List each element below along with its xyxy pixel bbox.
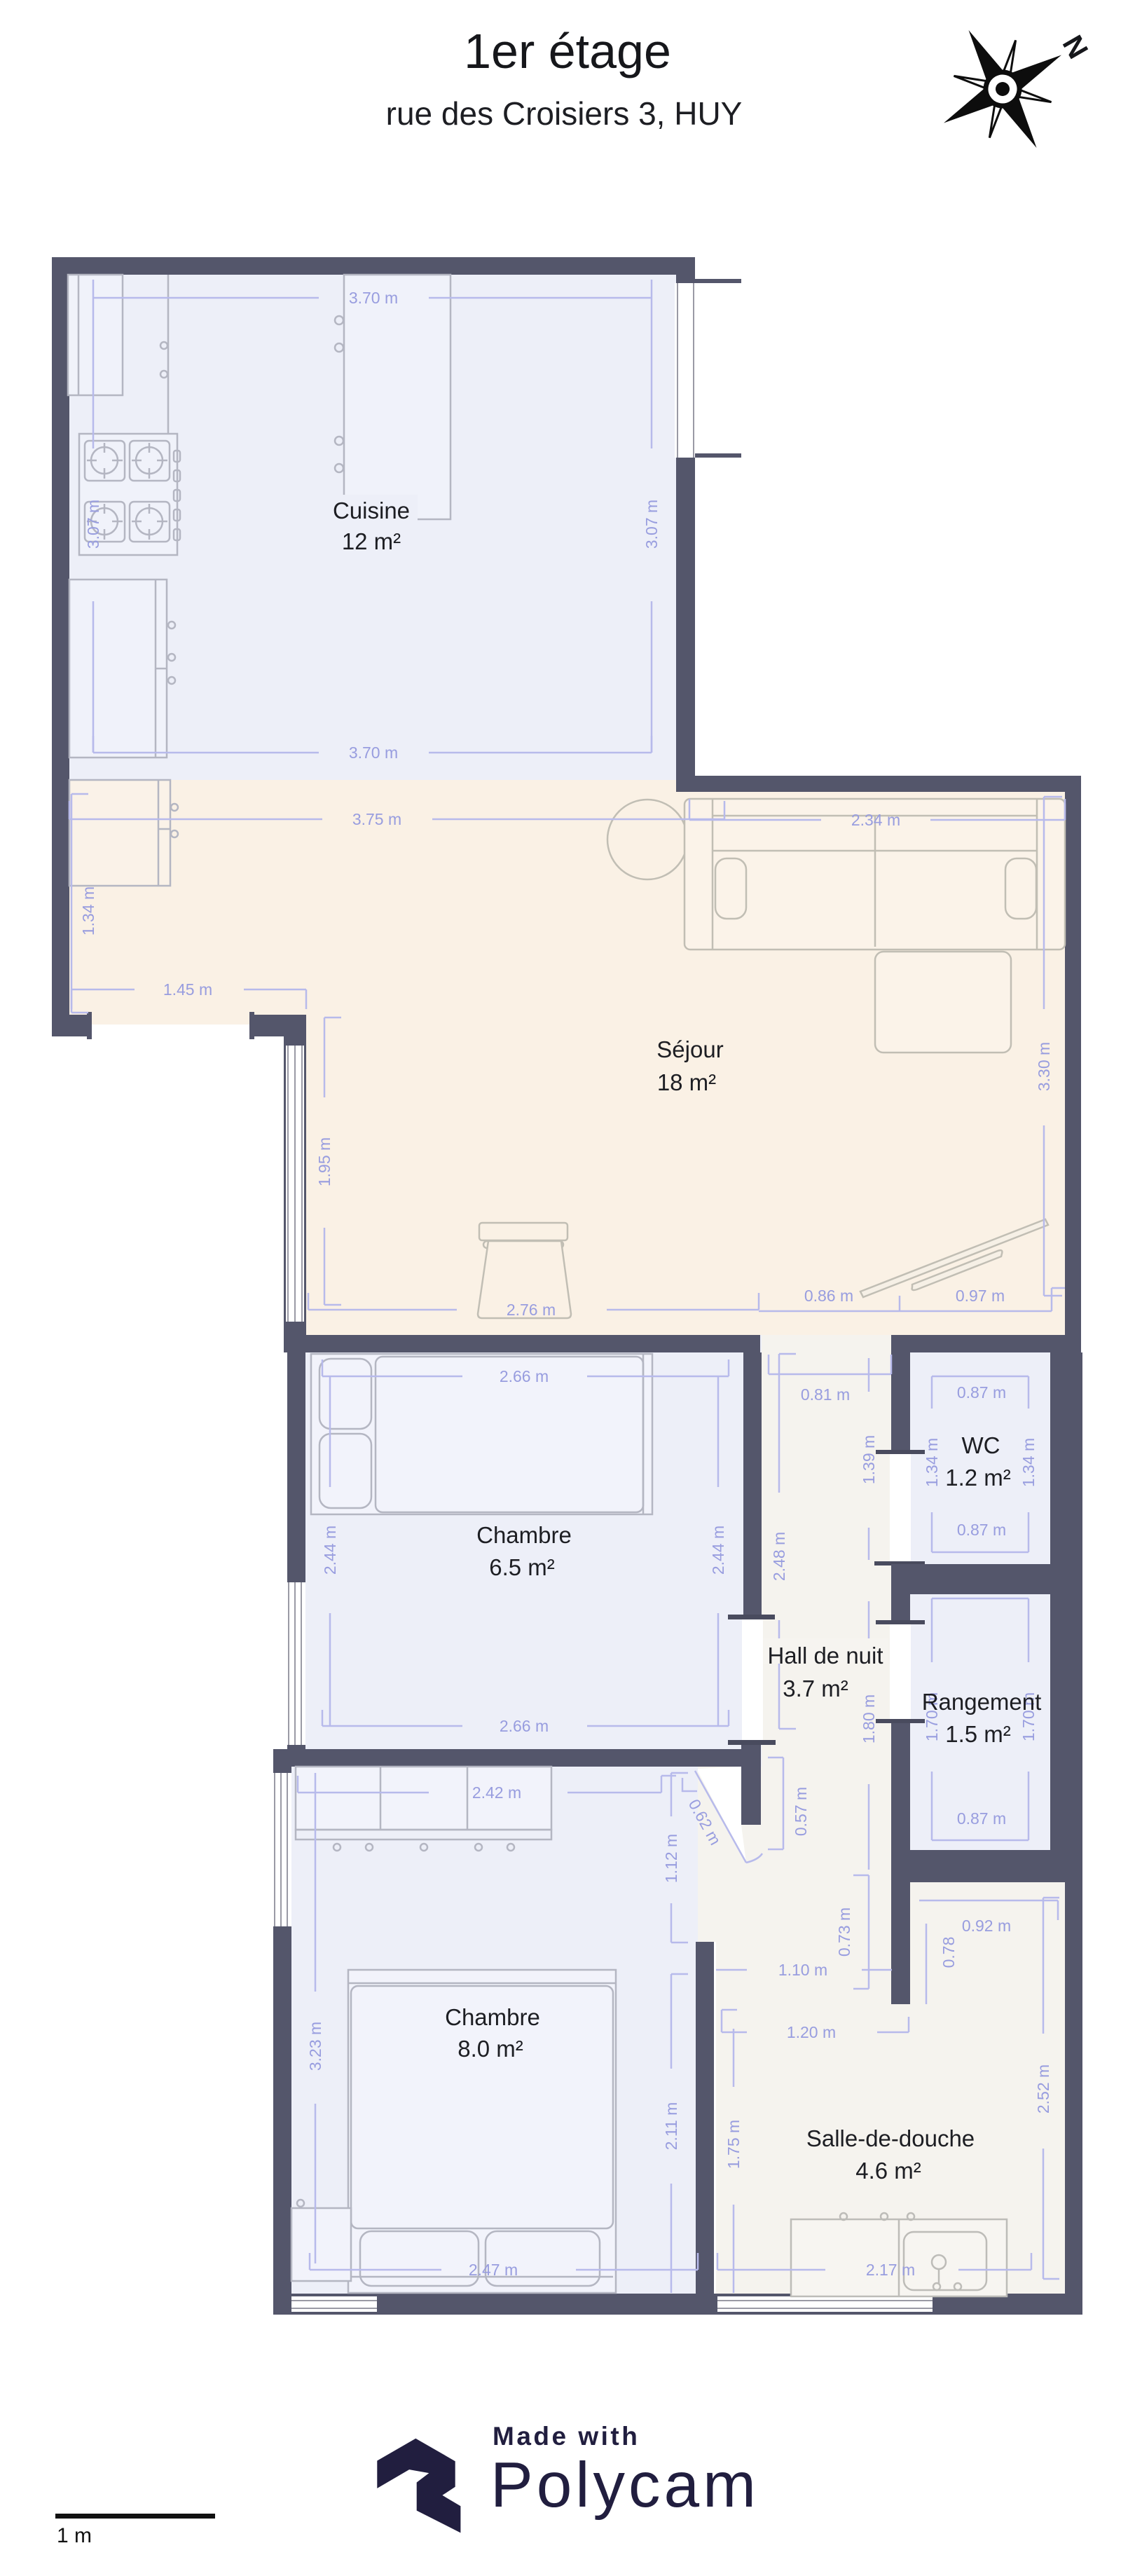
svg-text:1.80 m: 1.80 m (860, 1694, 878, 1743)
svg-text:2.17 m: 2.17 m (866, 2261, 915, 2279)
svg-text:4.6 m²: 4.6 m² (855, 2158, 921, 2184)
svg-text:2.66 m: 2.66 m (500, 1717, 549, 1735)
svg-text:Rangement: Rangement (922, 1689, 1042, 1715)
svg-text:0.86 m: 0.86 m (804, 1287, 853, 1305)
svg-text:1.34 m: 1.34 m (1019, 1438, 1038, 1487)
svg-text:1.12 m: 1.12 m (662, 1834, 680, 1883)
svg-text:2.44 m: 2.44 m (321, 1526, 339, 1575)
svg-text:2.66 m: 2.66 m (500, 1367, 549, 1385)
svg-text:rue des Croisiers 3, HUY: rue des Croisiers 3, HUY (386, 95, 743, 132)
svg-text:1.2 m²: 1.2 m² (945, 1465, 1011, 1491)
svg-text:12 m²: 12 m² (342, 528, 401, 554)
svg-text:1.39 m: 1.39 m (860, 1435, 878, 1484)
svg-text:Chambre: Chambre (445, 2004, 540, 2030)
svg-text:0.97 m: 0.97 m (956, 1287, 1005, 1305)
svg-text:1.95 m: 1.95 m (315, 1137, 333, 1186)
svg-text:Hall de nuit: Hall de nuit (767, 1643, 883, 1669)
svg-text:2.47 m: 2.47 m (469, 2261, 518, 2279)
svg-text:3.30 m: 3.30 m (1035, 1042, 1053, 1091)
svg-text:8.0 m²: 8.0 m² (458, 2036, 523, 2062)
svg-text:3.70 m: 3.70 m (349, 289, 398, 307)
svg-text:1.34 m: 1.34 m (79, 886, 97, 936)
svg-text:2.34 m: 2.34 m (851, 811, 900, 829)
svg-text:1.20 m: 1.20 m (787, 2023, 836, 2041)
svg-text:2.42 m: 2.42 m (472, 1783, 521, 1802)
svg-text:3.70 m: 3.70 m (349, 744, 398, 762)
svg-text:1.5 m²: 1.5 m² (945, 1721, 1011, 1747)
svg-text:0.81 m: 0.81 m (801, 1385, 850, 1404)
svg-text:2.48 m: 2.48 m (770, 1532, 788, 1581)
svg-text:2.76 m: 2.76 m (507, 1301, 556, 1319)
svg-text:18 m²: 18 m² (657, 1069, 716, 1095)
svg-text:Chambre: Chambre (476, 1522, 572, 1548)
svg-text:3.07 m: 3.07 m (84, 500, 102, 549)
svg-text:1.45 m: 1.45 m (163, 980, 212, 999)
svg-text:0.87 m: 0.87 m (957, 1521, 1006, 1539)
svg-text:1.10 m: 1.10 m (778, 1961, 827, 1979)
svg-text:Made with: Made with (493, 2422, 640, 2451)
svg-text:1er étage: 1er étage (464, 24, 671, 78)
svg-text:2.44 m: 2.44 m (709, 1526, 727, 1575)
svg-text:3.75 m: 3.75 m (352, 810, 401, 828)
svg-text:WC: WC (962, 1432, 1000, 1458)
svg-text:1.34 m: 1.34 m (923, 1438, 941, 1487)
svg-text:6.5 m²: 6.5 m² (489, 1554, 555, 1580)
svg-text:Salle-de-douche: Salle-de-douche (806, 2125, 975, 2151)
svg-text:Polycam: Polycam (490, 2450, 759, 2521)
svg-text:Séjour: Séjour (656, 1036, 723, 1062)
svg-text:1 m: 1 m (57, 2524, 92, 2547)
svg-text:3.23 m: 3.23 m (306, 2022, 324, 2071)
svg-text:0.92 m: 0.92 m (962, 1917, 1011, 1935)
svg-text:0.57 m: 0.57 m (792, 1787, 810, 1836)
svg-text:0.87 m: 0.87 m (957, 1383, 1006, 1402)
svg-text:0.73 m: 0.73 m (835, 1907, 853, 1957)
svg-text:3.7 m²: 3.7 m² (783, 1676, 848, 1701)
svg-text:0.87 m: 0.87 m (957, 1809, 1006, 1828)
svg-text:2.11 m: 2.11 m (662, 2102, 680, 2151)
svg-text:2.52 m: 2.52 m (1034, 2064, 1052, 2113)
svg-text:Cuisine: Cuisine (333, 498, 410, 523)
svg-text:0.78: 0.78 (940, 1937, 958, 1968)
svg-text:3.07 m: 3.07 m (642, 500, 661, 549)
svg-text:1.75 m: 1.75 m (724, 2120, 743, 2169)
